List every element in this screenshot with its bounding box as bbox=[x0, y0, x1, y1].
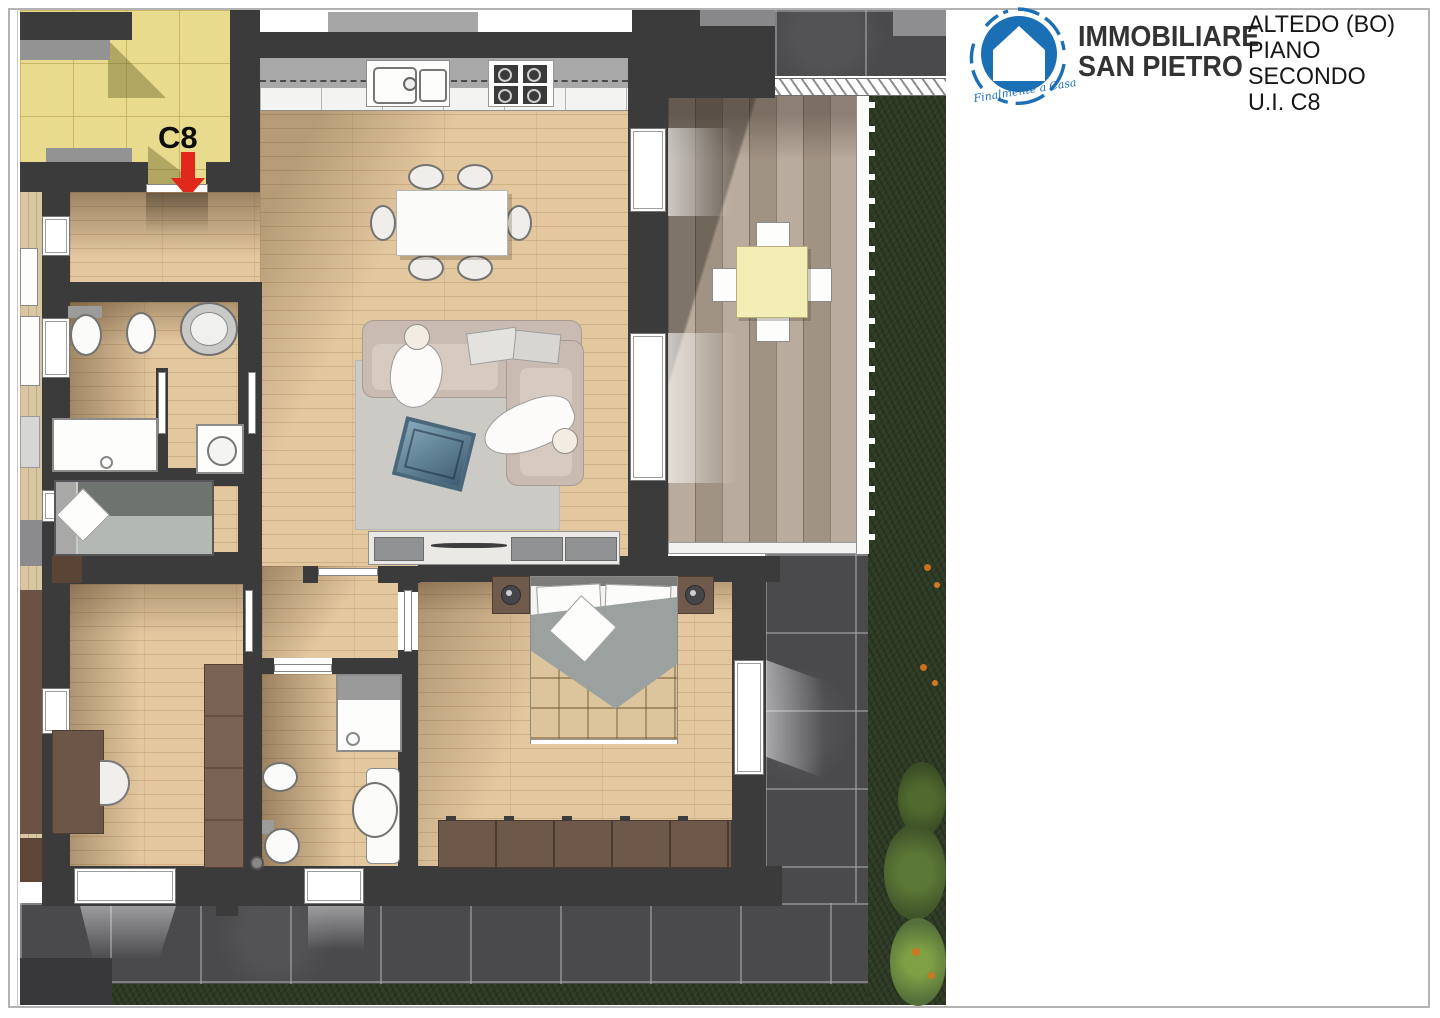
flower bbox=[932, 680, 938, 686]
cabinet-box bbox=[511, 537, 563, 561]
tv-cabinet bbox=[368, 531, 620, 565]
kitchen-sink bbox=[366, 60, 450, 107]
bath2-door bbox=[274, 664, 332, 672]
shower-tray bbox=[52, 418, 158, 472]
living-entry-door bbox=[248, 372, 256, 434]
bidet bbox=[126, 312, 156, 354]
bath2-top-wall-stub bbox=[262, 658, 274, 674]
sink-basin-right bbox=[419, 69, 447, 102]
title-block: Finalmente a Casa IMMOBILIARE SAN PIETRO… bbox=[950, 0, 1440, 120]
living-hall-door bbox=[318, 568, 378, 576]
dining-chair bbox=[408, 164, 444, 190]
wardrobe bbox=[438, 820, 732, 868]
bath2-top-wall bbox=[332, 658, 418, 674]
tall-cabinet bbox=[204, 664, 244, 868]
terrace-chair-left bbox=[712, 268, 738, 302]
master-door bbox=[404, 590, 412, 652]
entry-window bbox=[42, 216, 70, 256]
cabinet-box bbox=[565, 537, 617, 561]
terrace-railing-right bbox=[856, 96, 869, 554]
floor-plan-sheet: C8 bbox=[0, 0, 1440, 1018]
toilet2 bbox=[264, 828, 300, 864]
cabinet-box bbox=[374, 537, 424, 561]
dining-chair bbox=[408, 255, 444, 281]
terrace-chair-right bbox=[806, 268, 832, 302]
shower2-tray bbox=[336, 674, 402, 752]
bathroom1-top-wall bbox=[42, 282, 262, 302]
bush bbox=[890, 918, 946, 1006]
bathroom2-window bbox=[304, 868, 364, 904]
tv-screen bbox=[431, 543, 507, 548]
adjacent-fixture bbox=[20, 248, 38, 306]
plan-location: ALTEDO (BO) bbox=[1248, 12, 1434, 38]
lamp-highlight bbox=[690, 590, 696, 596]
stairwell-wall bbox=[20, 12, 132, 40]
shower2-wet-wall bbox=[338, 676, 400, 700]
double-bed bbox=[530, 576, 678, 744]
living-terrace-window bbox=[630, 333, 666, 481]
kitchen-stove bbox=[488, 60, 554, 107]
bidet2 bbox=[262, 762, 298, 792]
flower bbox=[920, 664, 927, 671]
study-side-window bbox=[42, 688, 70, 734]
living-terrace-door bbox=[630, 128, 666, 212]
dining-chair bbox=[370, 205, 396, 241]
toilet bbox=[70, 314, 102, 356]
top-wall bbox=[230, 32, 635, 60]
unit-entrance-arrow bbox=[181, 152, 195, 178]
flower bbox=[928, 972, 935, 979]
bed-footboard bbox=[531, 739, 677, 744]
washbasin-inner bbox=[190, 312, 228, 346]
shower2-drain bbox=[346, 732, 360, 746]
wall-notch bbox=[216, 906, 238, 916]
adjacent-furniture bbox=[20, 590, 42, 834]
plan-floor: PIANO SECONDO bbox=[1248, 38, 1434, 90]
stairwell-ledge bbox=[20, 40, 110, 60]
bath1-door bbox=[158, 372, 166, 434]
unit-label: C8 bbox=[158, 120, 198, 156]
person-head bbox=[404, 324, 430, 350]
terrace-top-ledge bbox=[700, 10, 775, 26]
flower bbox=[912, 948, 920, 956]
plan-inner-border bbox=[17, 10, 18, 1006]
stairwell-wall bbox=[20, 162, 148, 192]
nightstand-left bbox=[492, 576, 530, 614]
adjacent-fixture bbox=[20, 416, 40, 468]
terrace-chair-bottom bbox=[756, 316, 790, 342]
sofa-pillow bbox=[513, 330, 562, 365]
bathroom1-window bbox=[42, 318, 70, 378]
plan-unit: U.I. C8 bbox=[1248, 90, 1434, 116]
wardrobe-handles bbox=[446, 816, 726, 821]
study-window bbox=[74, 868, 176, 904]
terrace-chair-top bbox=[756, 222, 790, 248]
terrace-table bbox=[736, 246, 808, 318]
stone-paving-bottom bbox=[20, 903, 868, 984]
flower bbox=[934, 582, 940, 588]
dining-chair bbox=[457, 255, 493, 281]
sink2-basin bbox=[352, 782, 398, 838]
master-window bbox=[734, 660, 764, 775]
stairwell-ledge bbox=[46, 148, 132, 162]
brand-name-line2: SAN PIETRO bbox=[1078, 52, 1259, 82]
person-head bbox=[552, 428, 578, 454]
stone-light-block bbox=[893, 10, 946, 36]
washing-machine bbox=[196, 424, 244, 474]
garden-bottom bbox=[110, 983, 868, 1005]
stove-burner bbox=[494, 65, 518, 83]
dining-chair bbox=[506, 205, 532, 241]
single-bed bbox=[54, 480, 214, 556]
sink-faucet bbox=[403, 77, 417, 91]
adjacent-fixture bbox=[20, 316, 40, 386]
adjacent-furniture bbox=[20, 838, 42, 882]
terrace-edge-bottom bbox=[668, 542, 862, 554]
dining-table bbox=[396, 190, 508, 256]
adjacent-fixture bbox=[20, 520, 42, 566]
stove-burner bbox=[494, 86, 518, 104]
dining-chair bbox=[457, 164, 493, 190]
stove-burner bbox=[523, 86, 547, 104]
desk bbox=[52, 730, 104, 834]
entry-hall-floor bbox=[70, 192, 260, 282]
bedroom1-door-open bbox=[52, 556, 82, 583]
nightstand-right bbox=[676, 576, 714, 614]
bedroom-hall-pier bbox=[398, 566, 418, 592]
brand-name-line1: IMMOBILIARE bbox=[1078, 22, 1259, 52]
flower bbox=[924, 564, 931, 571]
hallway-top-wall-stub bbox=[303, 566, 318, 583]
study-door bbox=[245, 590, 253, 652]
door-hinge-mark bbox=[206, 179, 222, 184]
washer-door bbox=[207, 436, 237, 466]
bush bbox=[884, 824, 946, 920]
stone-corner-dark bbox=[20, 958, 112, 1005]
stove-burner bbox=[523, 65, 547, 83]
floor-drain bbox=[250, 856, 264, 870]
lamp-highlight bbox=[506, 590, 512, 596]
railing-posts bbox=[869, 102, 875, 548]
coffee-table-inner bbox=[404, 428, 464, 479]
shower-drain bbox=[100, 456, 113, 469]
